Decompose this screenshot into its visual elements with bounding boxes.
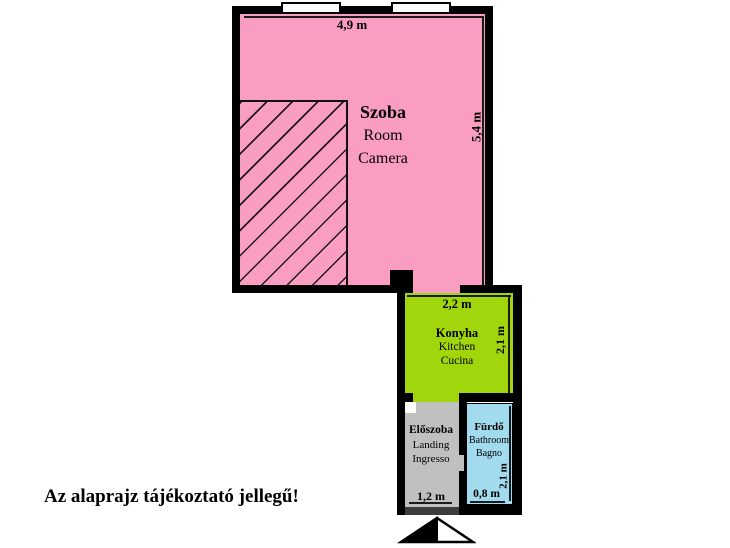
window-icon xyxy=(391,2,451,14)
hatch-area xyxy=(240,100,348,285)
szoba-name: Szoba xyxy=(335,101,431,124)
bath-name: Fürdő xyxy=(463,421,515,434)
entrance-arrow-icon xyxy=(396,515,476,545)
door-opening-kitchen-hall xyxy=(413,393,459,402)
bath-name-en: Bathroom xyxy=(463,434,515,447)
szoba-labels: Szoba Room Camera xyxy=(335,101,431,170)
szoba-depth-label: 5,4 m xyxy=(470,98,484,157)
hall-name-en: Landing xyxy=(401,438,461,453)
hall-name-it: Ingresso xyxy=(401,452,461,467)
disclaimer-text: Az alaprajz tájékoztató jellegű! xyxy=(44,486,299,508)
hall-width-dimension-line xyxy=(409,502,452,504)
entrance-threshold xyxy=(405,507,459,515)
hall-name: Előszoba xyxy=(401,423,461,438)
door-nook xyxy=(405,402,416,413)
floor-plan: 4,9 m Szoba Room Camera 5,4 m 2,2 m Kony… xyxy=(0,0,730,548)
kitchen-width-label: 2,2 m xyxy=(407,297,507,312)
hall-labels: Előszoba Landing Ingresso xyxy=(401,423,461,467)
szoba-name-it: Camera xyxy=(335,147,431,170)
kitchen-depth-label: 2,1 m xyxy=(493,312,507,368)
window-icon xyxy=(281,2,341,14)
szoba-name-en: Room xyxy=(335,124,431,147)
door-opening-szoba-kitchen xyxy=(413,285,460,293)
szoba-width-label: 4,9 m xyxy=(302,17,402,33)
bath-depth-dimension-line xyxy=(509,406,511,501)
